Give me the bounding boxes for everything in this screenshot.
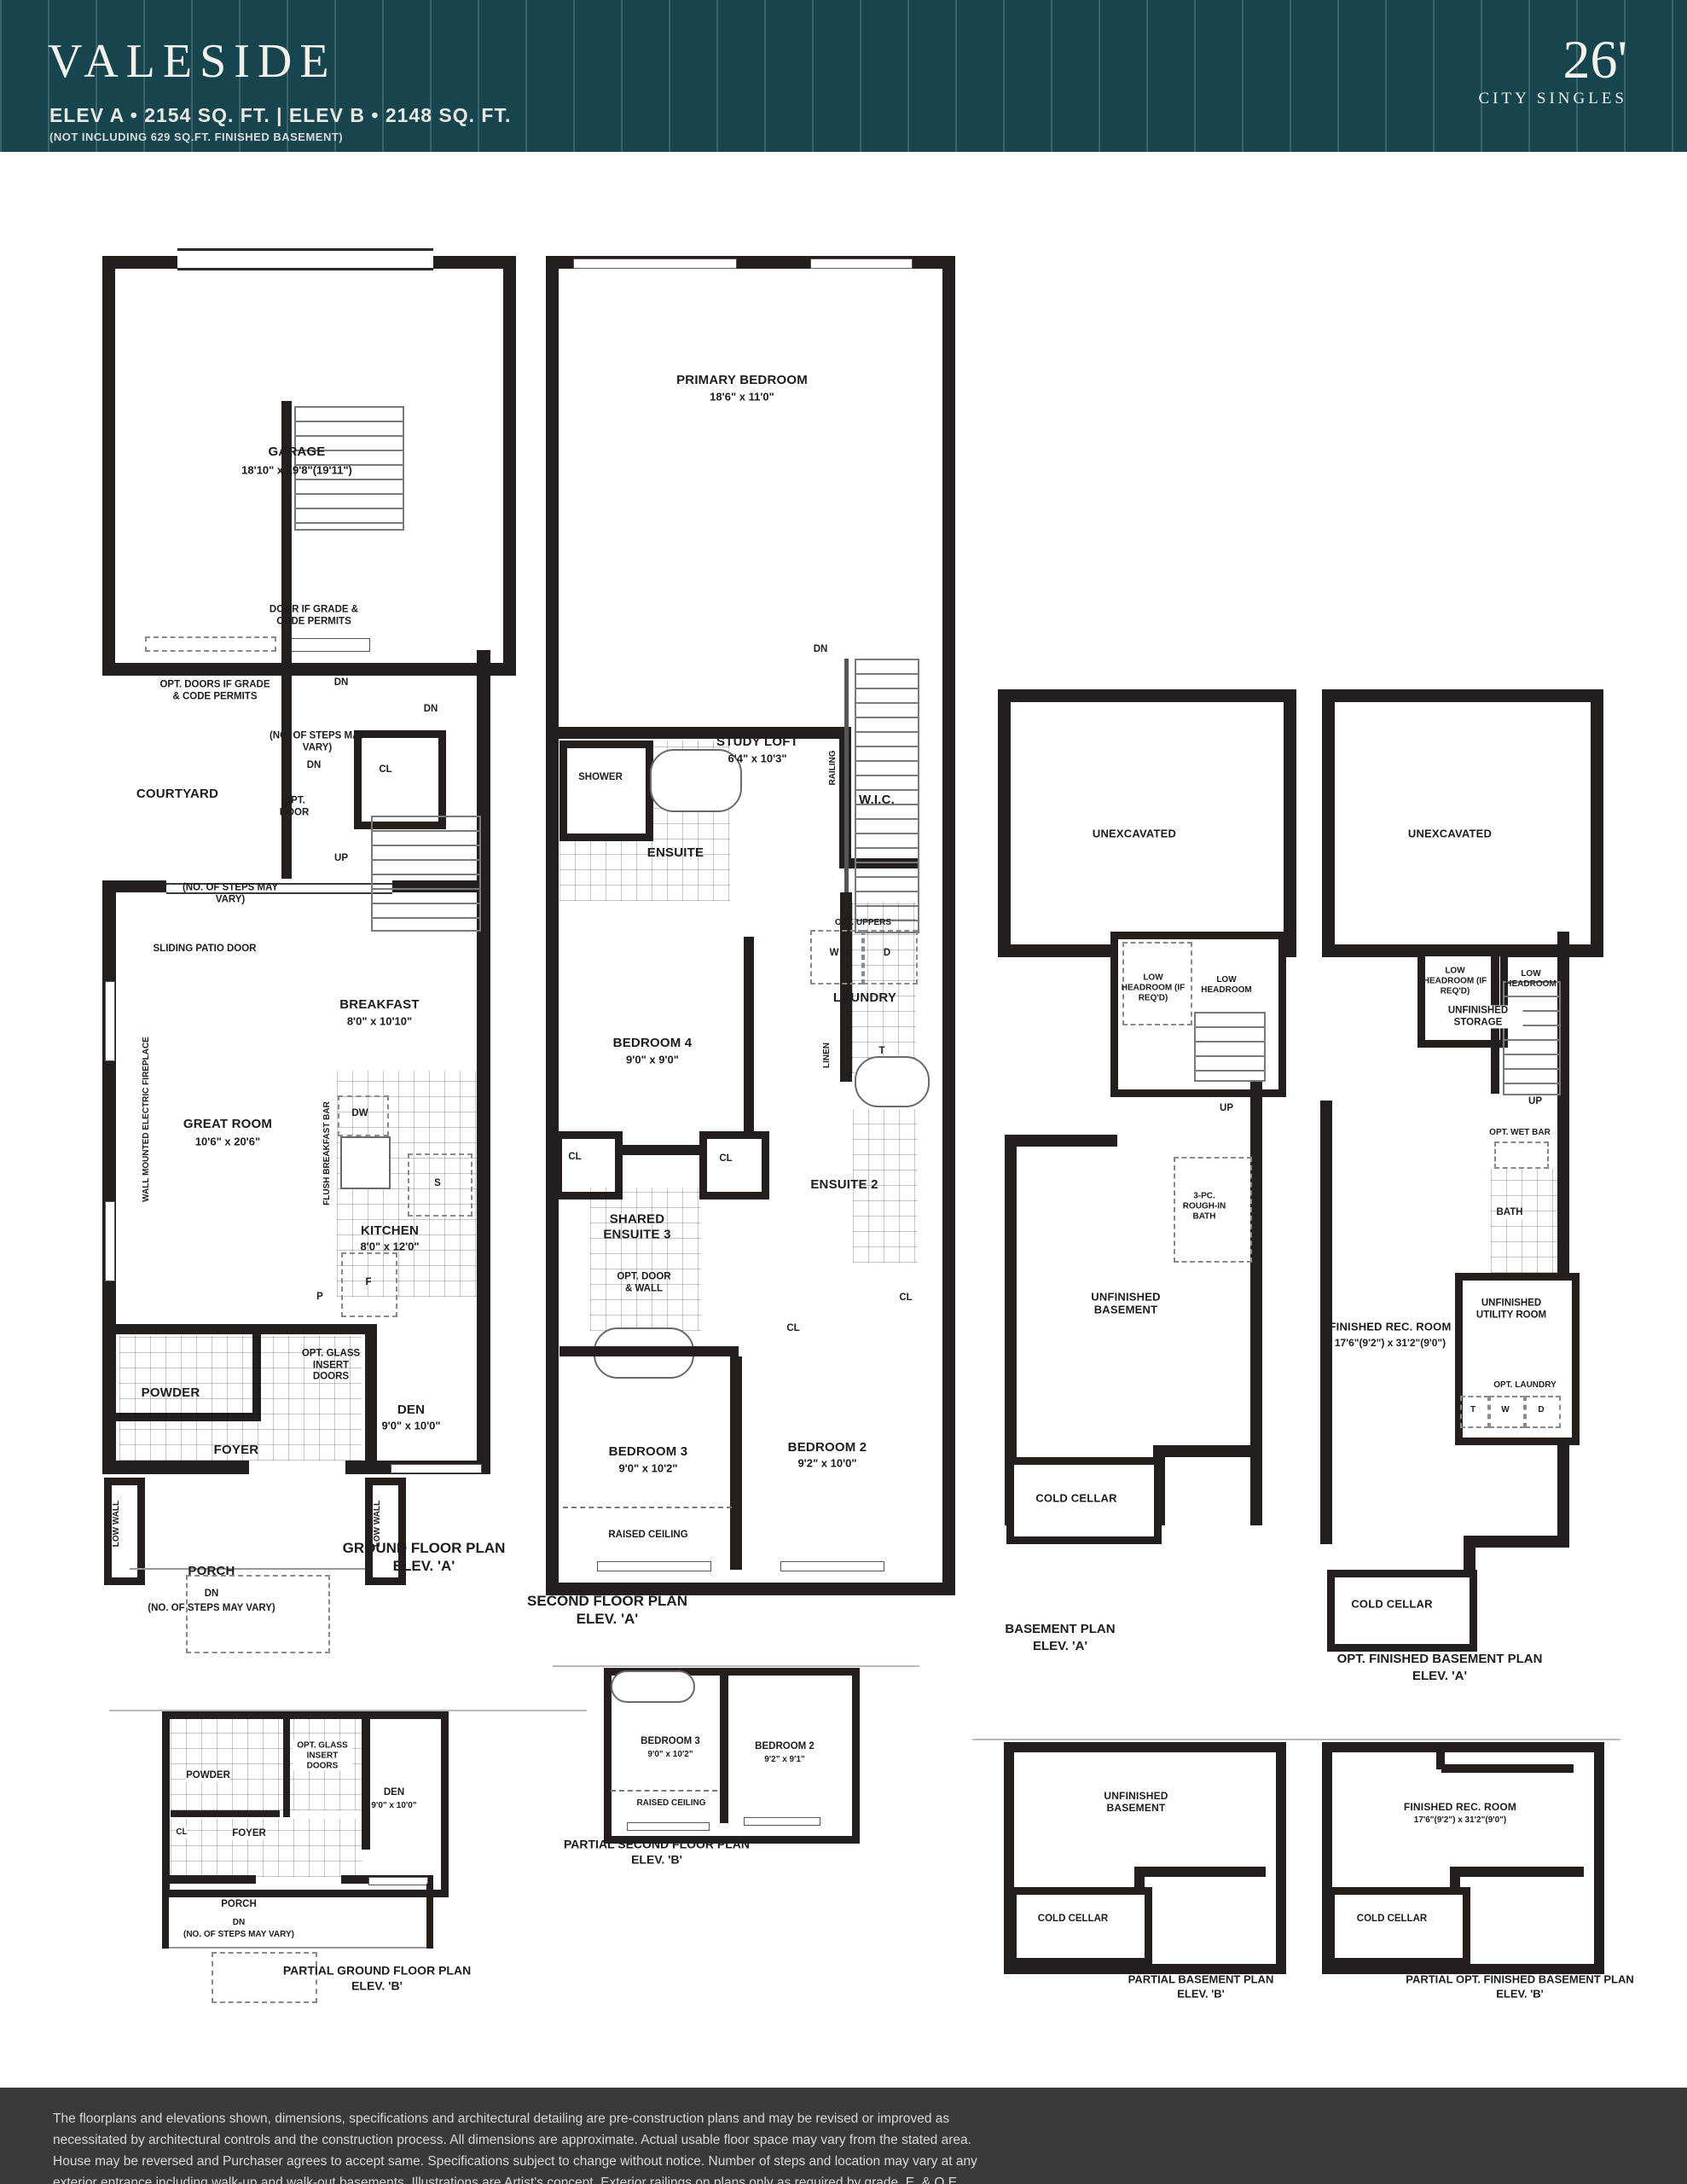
disclaimer-text: The floorplans and elevations shown, dim… — [53, 2108, 995, 2184]
cold-cellar-walls — [1327, 1887, 1470, 1966]
plan-partial-opt-basement-elev-b: FINISHED REC. ROOM 17'6"(9'2") x 31'2"(9… — [0, 0, 1687, 2184]
label-rec-room: FINISHED REC. ROOM — [1404, 1801, 1516, 1813]
plan-title: PARTIAL OPT. FINISHED BASEMENT PLAN — [1406, 1972, 1633, 1985]
wall — [1450, 1867, 1584, 1877]
wall — [1441, 1764, 1574, 1773]
label-cold-cellar: COLD CELLAR — [1357, 1914, 1427, 1926]
wall — [1436, 1742, 1445, 1769]
floorplan-sheet: VALESIDE ELEV A • 2154 SQ. FT. | ELEV B … — [0, 0, 1687, 2184]
disclaimer-body: The floorplans and elevations shown, dim… — [53, 2111, 977, 2184]
label-rec-room-dim: 17'6"(9'2") x 31'2"(9'0") — [1414, 1815, 1507, 1826]
plan-elev: ELEV. 'B' — [1496, 1987, 1544, 2000]
footer-band: The floorplans and elevations shown, dim… — [0, 2088, 1687, 2184]
